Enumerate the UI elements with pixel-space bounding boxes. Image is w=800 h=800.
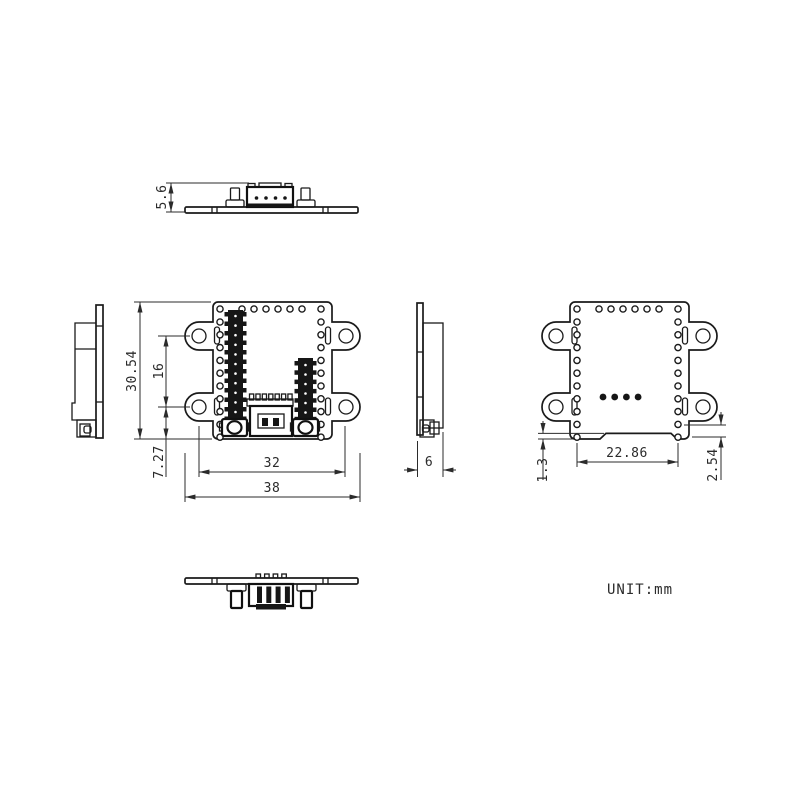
jst-connector-front bbox=[247, 394, 293, 436]
dim-label-7-27: 7.27 bbox=[152, 445, 167, 478]
view-top-profile bbox=[185, 183, 358, 213]
dim-label-2-54: 2.54 bbox=[706, 448, 721, 481]
button-profile-left bbox=[227, 584, 246, 608]
view-right-side bbox=[417, 303, 443, 437]
button-left bbox=[220, 419, 249, 436]
dim-connector-span: 22.86 bbox=[577, 443, 678, 467]
dim-label-1-3: 1.3 bbox=[536, 458, 551, 483]
view-front bbox=[185, 302, 360, 440]
button-profile-right bbox=[297, 188, 315, 207]
dim-label-6: 6 bbox=[425, 455, 433, 470]
dim-hole-bottom-offset: 7.27 bbox=[152, 407, 167, 479]
pcb-outline-back bbox=[542, 302, 717, 439]
button-profile-right bbox=[297, 584, 316, 608]
component-block bbox=[423, 323, 443, 428]
dim-thickness: 6 bbox=[404, 432, 456, 477]
button-profile-left bbox=[226, 188, 244, 207]
dim-label-16: 16 bbox=[152, 363, 167, 380]
view-back bbox=[542, 302, 717, 440]
dim-label-30-54: 30.54 bbox=[125, 350, 140, 392]
unit-label: UNIT:mm bbox=[607, 582, 673, 598]
jst-connector-bottom-profile bbox=[249, 584, 293, 610]
connector-side-profile bbox=[77, 420, 96, 437]
dim-pad-pitch: 2.54 bbox=[684, 412, 726, 482]
view-bottom-profile bbox=[185, 574, 358, 610]
dim-hole-spacing-vertical: 16 bbox=[152, 336, 190, 407]
component-block bbox=[72, 323, 96, 420]
dim-label-22-86: 22.86 bbox=[606, 446, 648, 461]
button-right bbox=[291, 419, 320, 436]
view-left-side bbox=[72, 305, 103, 438]
mechanical-drawing: 5.6 30.54 16 7.27 32 bbox=[0, 0, 800, 800]
dim-label-5-6: 5.6 bbox=[155, 185, 170, 210]
jst-connector-profile bbox=[247, 183, 293, 207]
dim-label-38: 38 bbox=[264, 481, 281, 496]
dim-label-32: 32 bbox=[264, 456, 281, 471]
